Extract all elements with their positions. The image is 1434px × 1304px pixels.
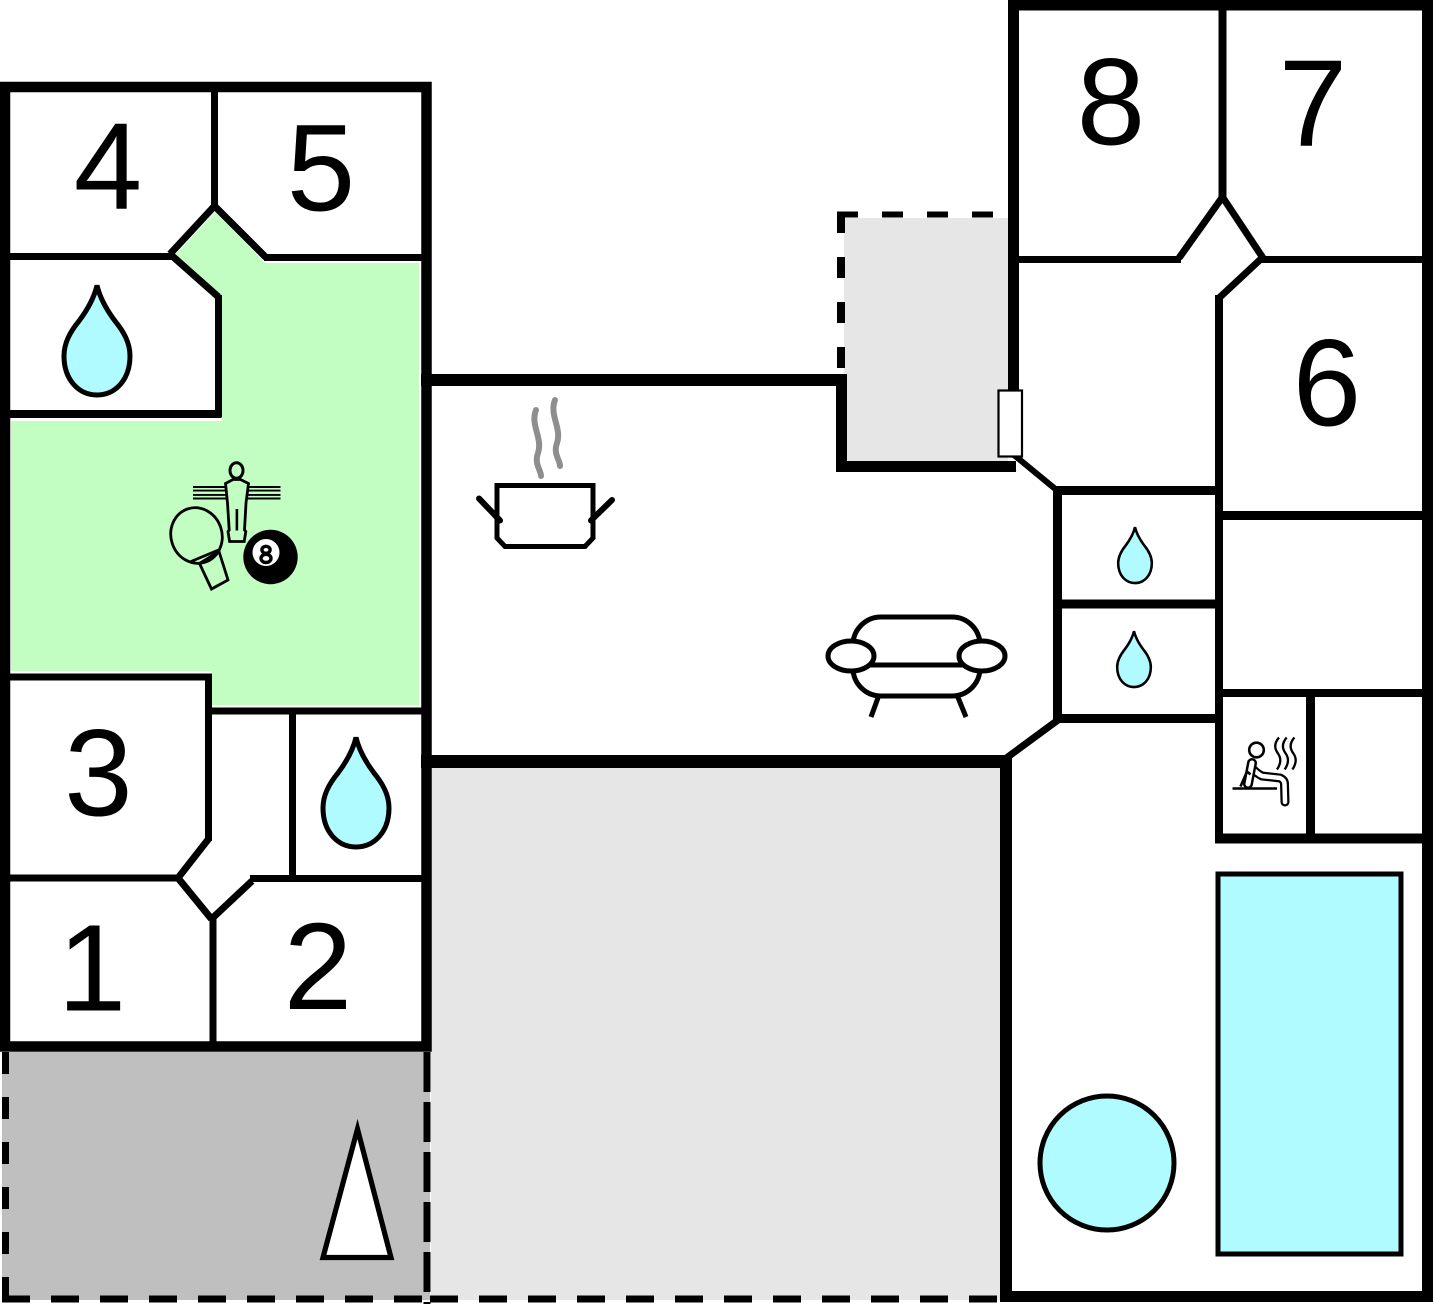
svg-text:5: 5 — [287, 101, 355, 238]
svg-text:8: 8 — [1077, 35, 1145, 172]
svg-text:3: 3 — [64, 706, 132, 843]
svg-text:7: 7 — [1279, 36, 1347, 173]
svg-text:4: 4 — [74, 99, 142, 236]
svg-text:1: 1 — [58, 901, 126, 1038]
svg-text:6: 6 — [1293, 316, 1361, 453]
svg-text:2: 2 — [284, 899, 352, 1036]
